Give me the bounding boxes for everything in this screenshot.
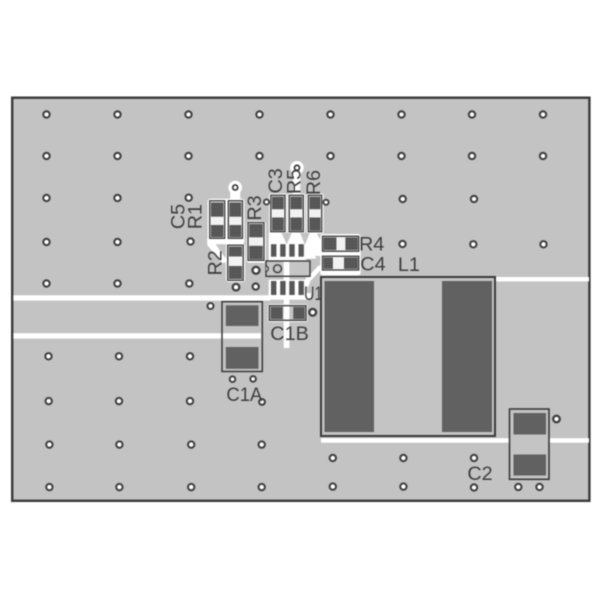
svg-text:R3: R3 <box>244 195 266 220</box>
svg-text:R1: R1 <box>185 204 207 229</box>
svg-text:R5: R5 <box>283 169 305 194</box>
svg-text:R2: R2 <box>204 250 226 275</box>
svg-text:L1: L1 <box>398 254 420 276</box>
svg-text:C1B: C1B <box>270 323 308 345</box>
svg-text:R4: R4 <box>359 233 384 255</box>
svg-text:C4: C4 <box>360 254 385 276</box>
svg-text:C1A: C1A <box>226 384 263 406</box>
svg-text:R6: R6 <box>303 170 325 195</box>
svg-text:U1: U1 <box>304 283 323 305</box>
svg-text:C2: C2 <box>467 463 492 485</box>
